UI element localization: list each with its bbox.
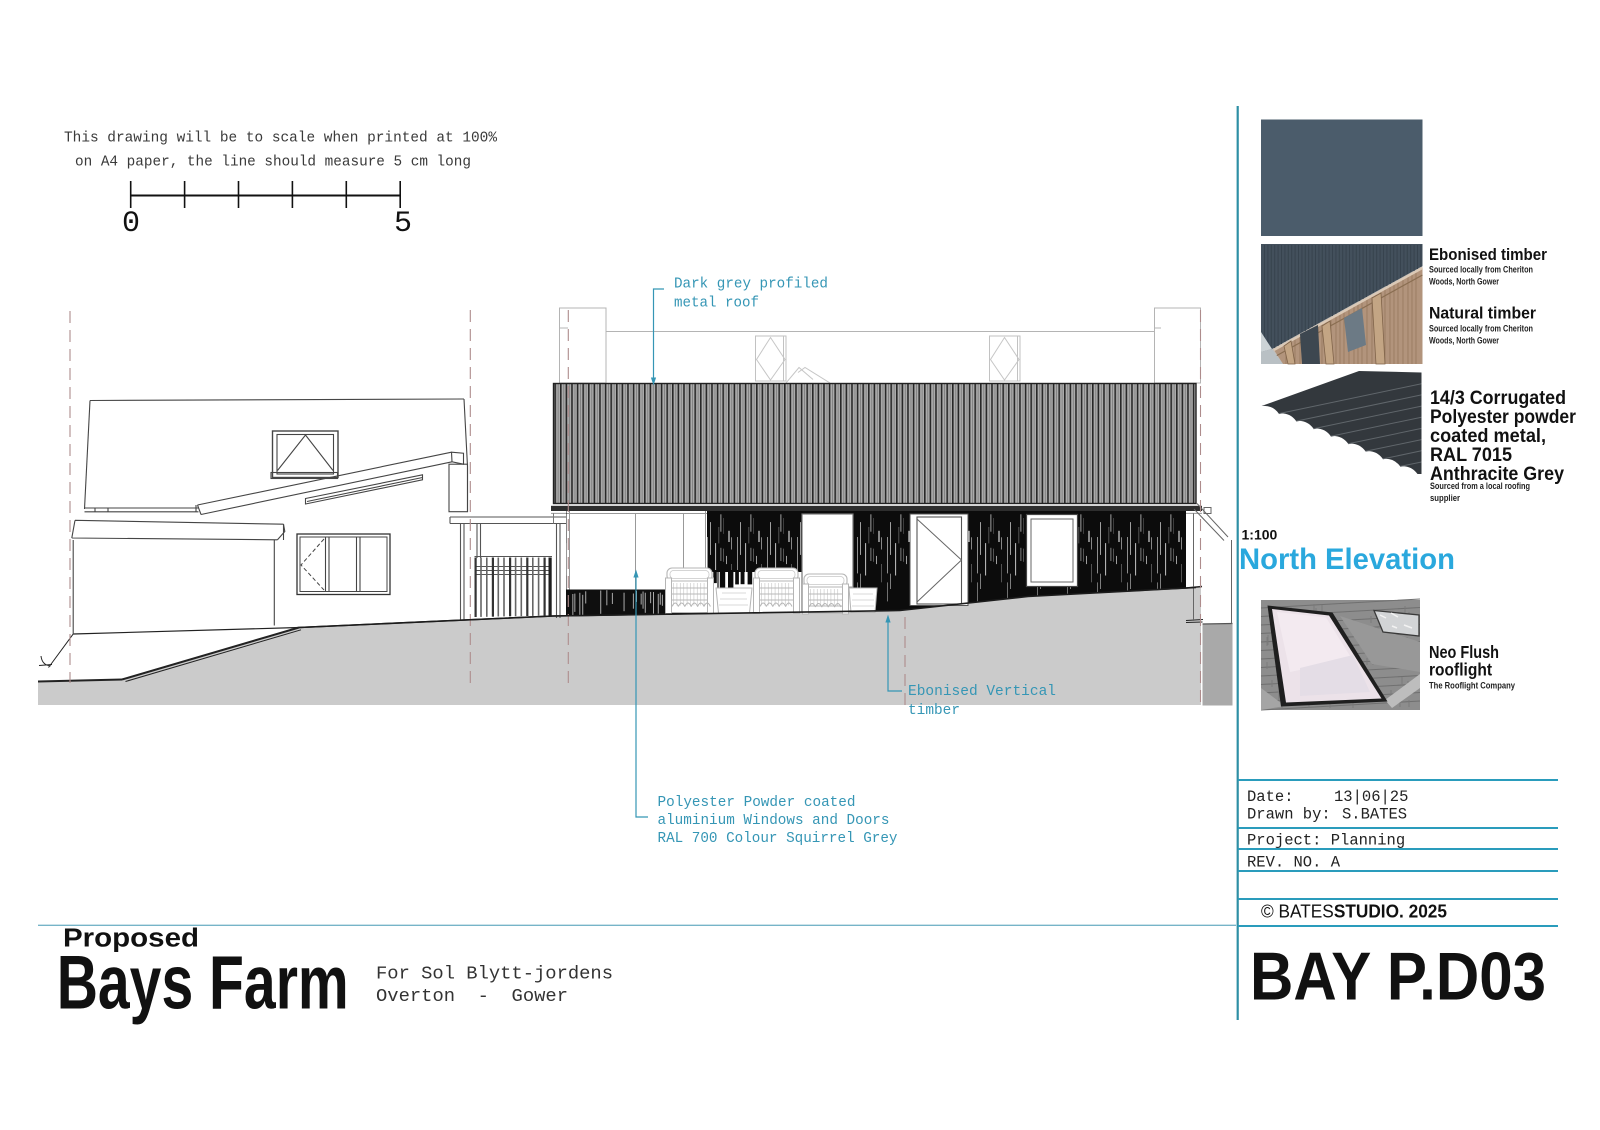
svg-text:Date:: Date: xyxy=(1247,788,1294,806)
svg-text:Project: Planning: Project: Planning xyxy=(1247,832,1405,850)
svg-text:© BATESSTUDIO. 2025: © BATESSTUDIO. 2025 xyxy=(1261,901,1447,922)
svg-text:Sourced locally from Cheriton: Sourced locally from Cheriton xyxy=(1429,265,1533,276)
svg-text:The Rooflight Company: The Rooflight Company xyxy=(1429,681,1516,692)
svg-text:For Sol Blytt-jordens: For Sol Blytt-jordens xyxy=(376,964,613,985)
svg-text:Polyester Powder coated: Polyester Powder coated xyxy=(658,795,856,811)
svg-text:Drawn by:: Drawn by: xyxy=(1247,806,1331,824)
svg-text:14/3 Corrugated: 14/3 Corrugated xyxy=(1430,388,1566,409)
svg-text:supplier: supplier xyxy=(1430,493,1460,504)
svg-text:0: 0 xyxy=(122,207,140,241)
svg-text:S.BATES: S.BATES xyxy=(1342,806,1407,824)
svg-text:RAL 7015: RAL 7015 xyxy=(1430,445,1512,466)
svg-text:coated metal,: coated metal, xyxy=(1430,426,1546,447)
svg-text:REV. NO. A: REV. NO. A xyxy=(1247,854,1341,872)
svg-text:Dark grey profiled: Dark grey profiled xyxy=(674,277,828,293)
svg-text:rooflight: rooflight xyxy=(1429,660,1492,680)
svg-text:on A4 paper, the line should m: on A4 paper, the line should measure 5 c… xyxy=(75,155,471,171)
svg-text:RAL 700 Colour Squirrel Grey: RAL 700 Colour Squirrel Grey xyxy=(658,831,898,847)
svg-text:Overton - Gower: Overton - Gower xyxy=(376,986,568,1007)
svg-text:Woods, North Gower: Woods, North Gower xyxy=(1429,336,1499,347)
svg-text:Sourced locally from Cheriton: Sourced locally from Cheriton xyxy=(1429,324,1533,335)
svg-text:Natural timber: Natural timber xyxy=(1429,305,1537,323)
svg-text:Sourced from a local roofing: Sourced from a local roofing xyxy=(1430,481,1530,492)
svg-text:metal roof: metal roof xyxy=(674,296,759,312)
svg-text:Woods, North Gower: Woods, North Gower xyxy=(1429,277,1499,288)
svg-text:Ebonised timber: Ebonised timber xyxy=(1429,246,1548,264)
svg-text:aluminium Windows and Doors: aluminium Windows and Doors xyxy=(658,813,890,829)
svg-text:Polyester powder: Polyester powder xyxy=(1430,407,1577,428)
svg-text:Ebonised Vertical: Ebonised Vertical xyxy=(908,684,1056,700)
svg-text:timber: timber xyxy=(908,703,960,719)
svg-text:North Elevation: North Elevation xyxy=(1239,543,1455,576)
svg-text:1:100: 1:100 xyxy=(1242,527,1278,543)
svg-text:This drawing will be to scale: This drawing will be to scale when print… xyxy=(64,131,497,147)
svg-text:5: 5 xyxy=(394,207,412,241)
svg-text:Bays Farm: Bays Farm xyxy=(57,941,349,1026)
svg-text:13|06|25: 13|06|25 xyxy=(1334,788,1408,806)
svg-text:BAY P.D03: BAY P.D03 xyxy=(1250,938,1546,1014)
